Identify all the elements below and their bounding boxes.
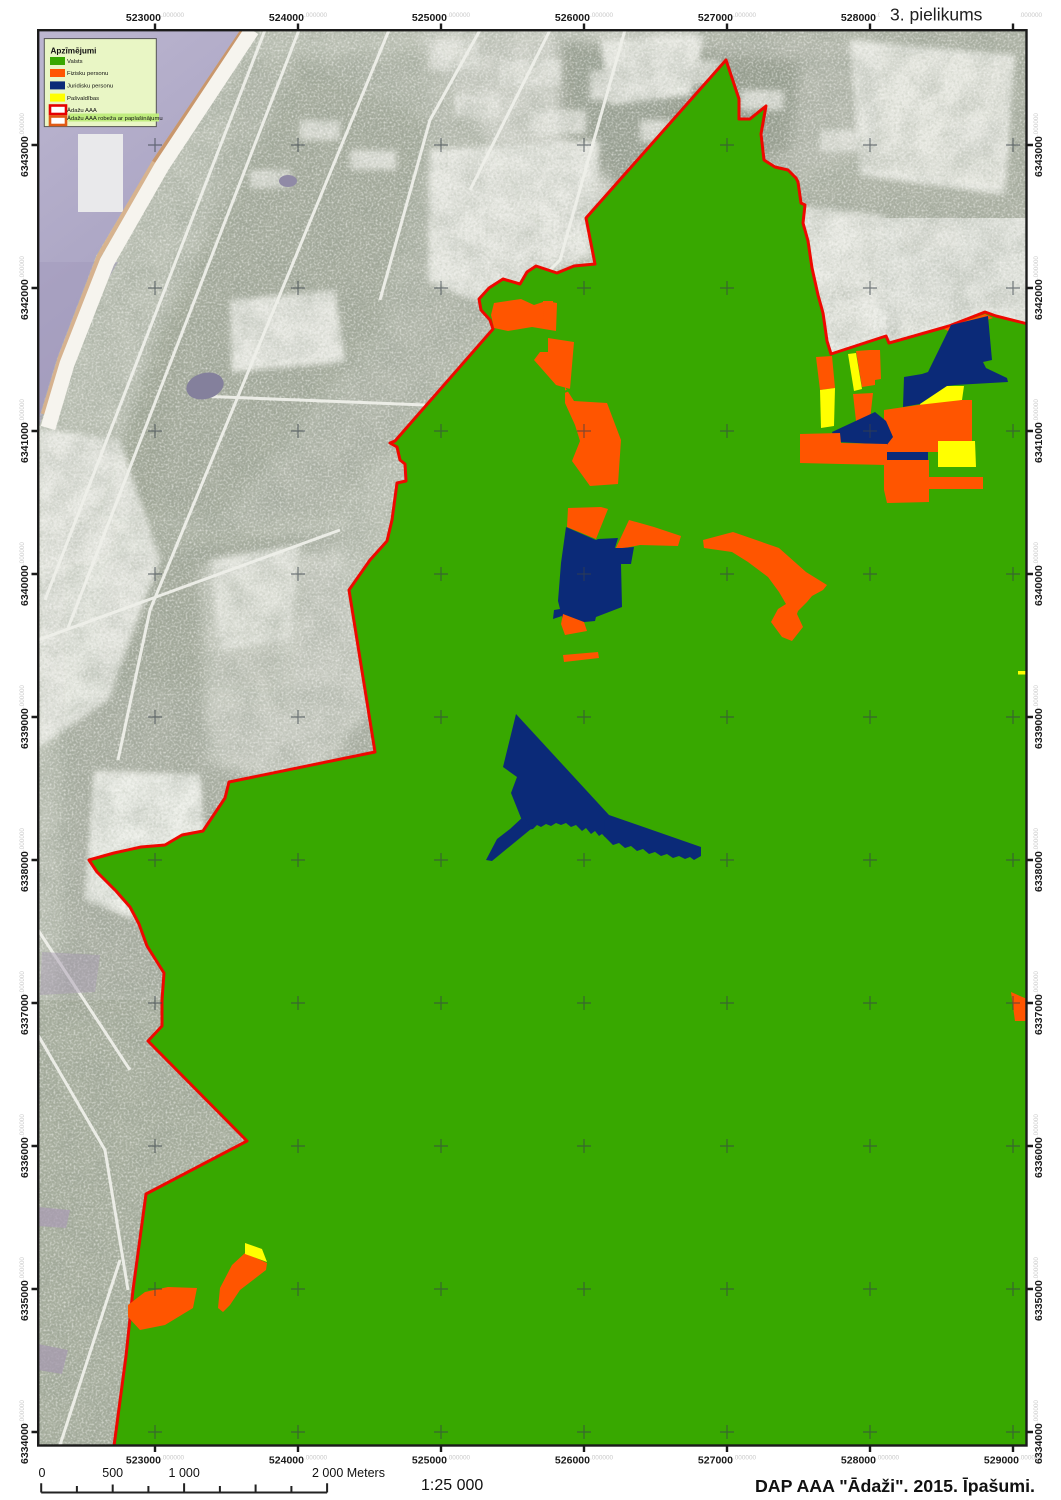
svg-text:526000.000000: 526000.000000: [555, 1455, 614, 1467]
svg-text:6340000.000000: 6340000.000000: [1033, 542, 1045, 606]
svg-text:523000.000000: 523000.000000: [126, 12, 185, 24]
svg-text:6343000.000000: 6343000.000000: [19, 113, 31, 177]
svg-text:Ādažu AAA: Ādažu AAA: [67, 107, 97, 114]
svg-text:6334000.000000: 6334000.000000: [19, 1400, 31, 1464]
svg-text:Ādažu AAA robeža ar paplašināj: Ādažu AAA robeža ar paplašinājumu: [67, 115, 163, 122]
svg-text:3. pielikums: 3. pielikums: [890, 5, 983, 25]
svg-text:6339000.000000: 6339000.000000: [1033, 685, 1045, 749]
svg-text:500: 500: [102, 1466, 123, 1480]
svg-text:6338000.000000: 6338000.000000: [19, 828, 31, 892]
svg-text:523000.000000: 523000.000000: [126, 1455, 185, 1467]
svg-text:528000.000000: 528000.000000: [841, 1455, 900, 1467]
svg-text:6337000.000000: 6337000.000000: [19, 971, 31, 1035]
svg-text:524000.000000: 524000.000000: [269, 12, 328, 24]
svg-text:6338000.000000: 6338000.000000: [1033, 828, 1045, 892]
svg-text:Fizisku personu: Fizisku personu: [67, 71, 108, 77]
svg-text:6334000.000000: 6334000.000000: [1033, 1400, 1045, 1464]
svg-text:6336000.000000: 6336000.000000: [1033, 1114, 1045, 1178]
svg-text:1:25 000: 1:25 000: [421, 1477, 483, 1494]
svg-text:2 000 Meters: 2 000 Meters: [312, 1466, 385, 1480]
svg-text:6341000.000000: 6341000.000000: [1033, 399, 1045, 463]
svg-text:Valsts: Valsts: [67, 59, 83, 65]
svg-text:6337000.000000: 6337000.000000: [1033, 971, 1045, 1035]
svg-text:525000.000000: 525000.000000: [412, 12, 471, 24]
svg-text:527000.000000: 527000.000000: [698, 1455, 757, 1467]
svg-text:DAP AAA "Ādaži". 2015. Īpašumi: DAP AAA "Ādaži". 2015. Īpašumi.: [755, 1476, 1035, 1496]
svg-text:1 000: 1 000: [169, 1466, 200, 1480]
svg-text:Juridisku personu: Juridisku personu: [67, 84, 113, 90]
svg-text:0: 0: [39, 1466, 46, 1480]
svg-text:525000.000000: 525000.000000: [412, 1455, 471, 1467]
svg-text:526000.000000: 526000.000000: [555, 12, 614, 24]
svg-text:6342000.000000: 6342000.000000: [1033, 256, 1045, 320]
svg-text:6342000.000000: 6342000.000000: [19, 256, 31, 320]
svg-text:6335000.000000: 6335000.000000: [19, 1257, 31, 1321]
svg-text:6336000.000000: 6336000.000000: [19, 1114, 31, 1178]
svg-text:6339000.000000: 6339000.000000: [19, 685, 31, 749]
svg-text:Apzīmējumi: Apzīmējumi: [51, 47, 97, 56]
svg-text:6343000.000000: 6343000.000000: [1033, 113, 1045, 177]
svg-text:6335000.000000: 6335000.000000: [1033, 1257, 1045, 1321]
svg-text:524000.000000: 524000.000000: [269, 1455, 328, 1467]
svg-text:Pašvaldības: Pašvaldības: [67, 96, 99, 102]
svg-text:6341000.000000: 6341000.000000: [19, 399, 31, 463]
svg-text:6340000.000000: 6340000.000000: [19, 542, 31, 606]
svg-text:527000.000000: 527000.000000: [698, 12, 757, 24]
